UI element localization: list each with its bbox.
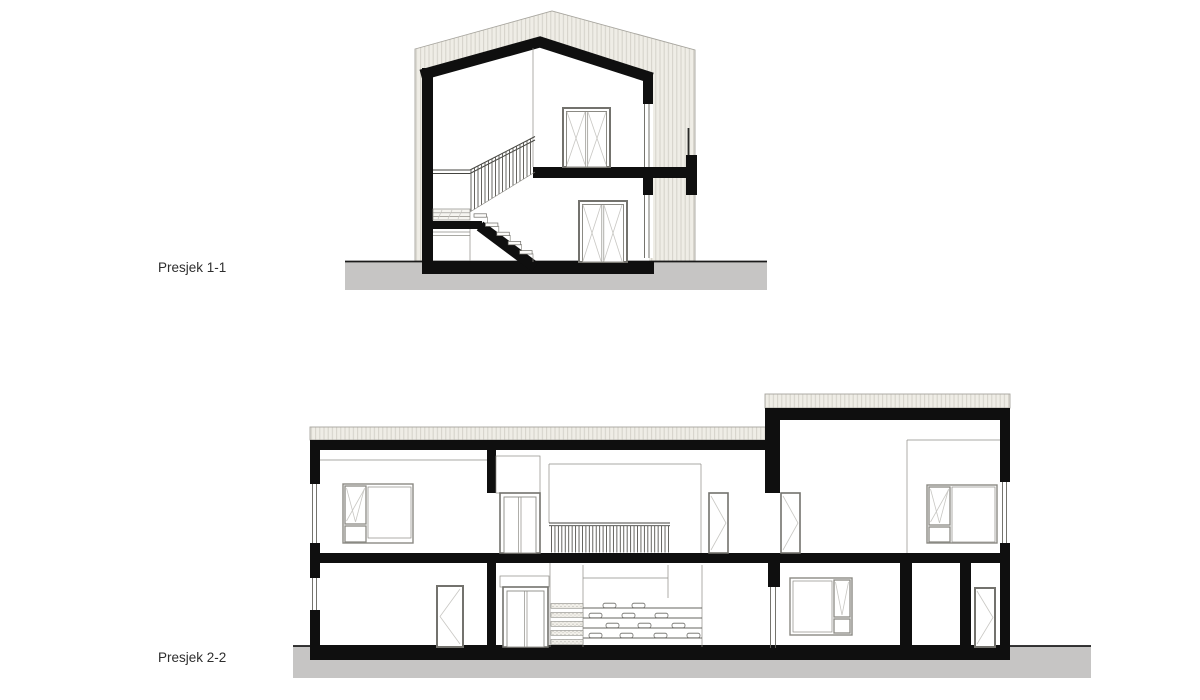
upper-right-window	[927, 485, 997, 543]
interior-wall-lower	[487, 563, 496, 648]
section-2-2-drawing: Presjek 2-2	[158, 394, 1091, 678]
upper-left-window	[343, 484, 413, 543]
balusters-hatch	[552, 526, 669, 553]
roofs	[310, 394, 1010, 493]
left-roof-siding	[310, 427, 767, 440]
right-wall-upper-cut	[643, 73, 653, 104]
floor-slab-cut	[533, 167, 697, 178]
storage-shelves	[583, 603, 702, 638]
architectural-sections-canvas: Presjek 1-1	[0, 0, 1200, 700]
section-2-2-label: Presjek 2-2	[158, 650, 226, 665]
right-wall-a	[1000, 420, 1010, 482]
upper-right-door	[781, 493, 800, 553]
interior-wall-stub	[768, 563, 780, 587]
lower-big-window	[790, 578, 852, 635]
cut-walls	[310, 420, 1010, 660]
left-wall-a	[310, 440, 320, 484]
void-balustrade	[549, 523, 670, 553]
interior-wall-c	[900, 563, 912, 648]
upper-hall-door	[500, 493, 540, 553]
lower-left-door	[437, 586, 463, 647]
section-1-1-label: Presjek 1-1	[158, 260, 226, 275]
lower-hall-door	[503, 587, 548, 647]
right-roof-siding	[765, 394, 1010, 408]
sections-drawing-svg: Presjek 1-1	[0, 0, 1200, 700]
interior-wall-d	[960, 563, 971, 648]
lower-door	[579, 201, 627, 262]
interior-wall-upper	[487, 450, 496, 493]
lower-right-door	[975, 588, 995, 647]
roof-step-wall	[765, 408, 780, 493]
right-roof-slab	[765, 408, 1010, 420]
left-roof-slab	[310, 440, 767, 450]
upper-room-door	[709, 493, 728, 553]
section-1-1-drawing: Presjek 1-1	[158, 11, 767, 290]
upper-door	[563, 108, 610, 167]
stair-risers	[551, 604, 583, 645]
left-wall-c	[310, 610, 320, 648]
mid-floor-slab	[310, 553, 1010, 563]
left-wall-cut	[422, 68, 433, 263]
